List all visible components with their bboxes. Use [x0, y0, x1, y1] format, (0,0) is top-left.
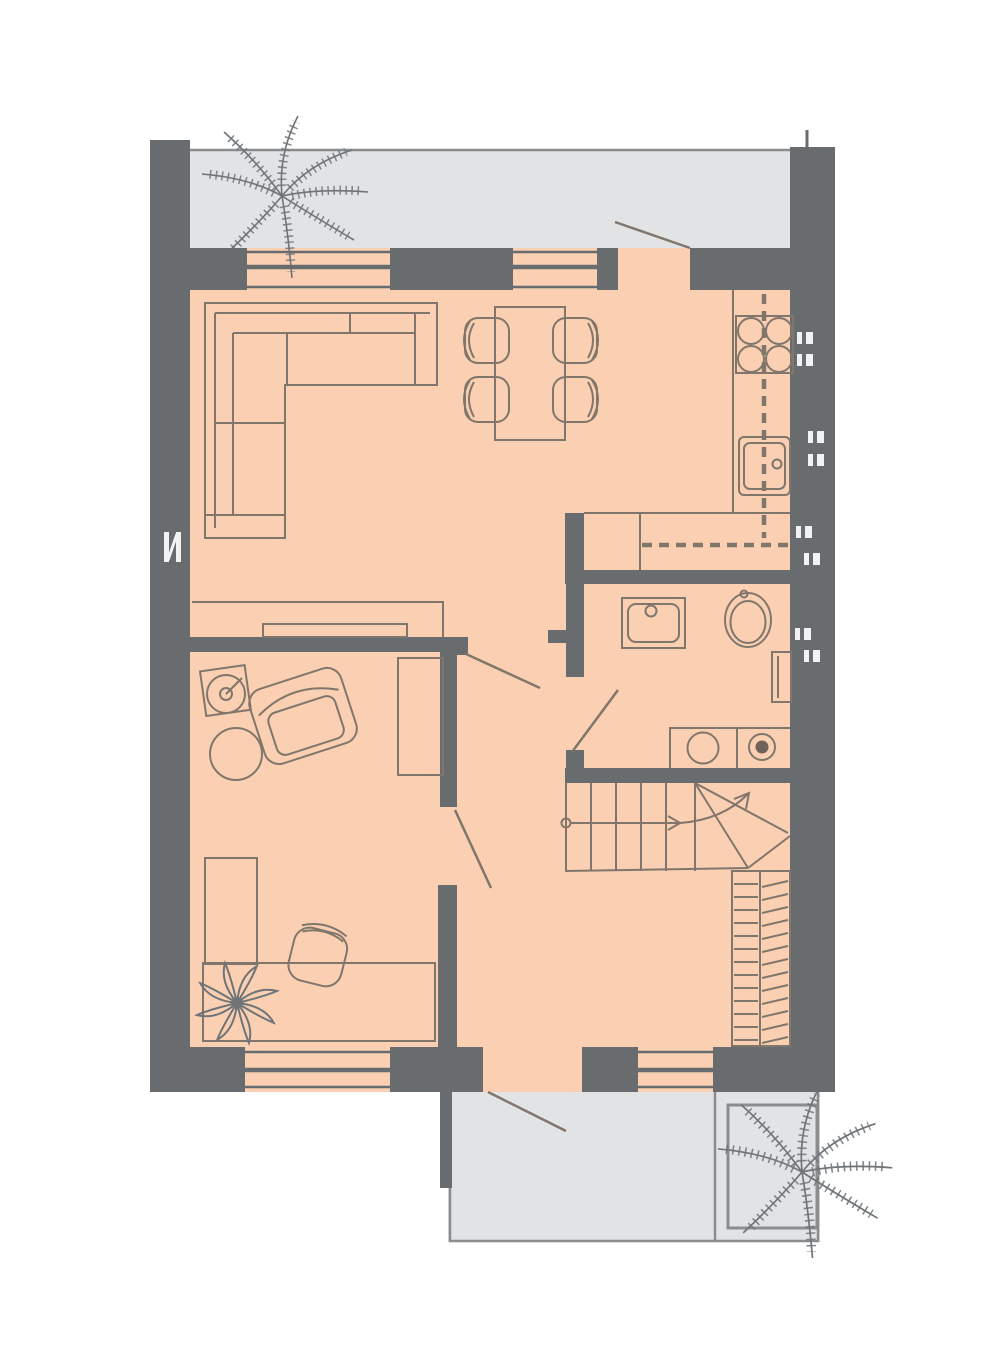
north-wall-seg1: [190, 248, 247, 290]
bedroom-north-wall: [190, 637, 468, 652]
south-wall-seg3: [582, 1047, 638, 1092]
porch-side-wall: [440, 1092, 452, 1188]
left-exterior-wall: [150, 140, 190, 1092]
bathroom-north-wall: [565, 570, 790, 584]
right-exterior-wall: [790, 147, 835, 1092]
floor-plan-page: [0, 0, 999, 1350]
south-wall-seg1: [185, 1047, 245, 1092]
bathroom-wall-stub: [548, 630, 566, 643]
bathroom-west-wall: [566, 584, 584, 677]
bottom-terrace-deck: [448, 1092, 820, 1242]
north-wall-seg3: [690, 248, 792, 290]
north-wall-mullion: [597, 248, 618, 290]
north-wall-seg2: [390, 248, 513, 290]
stairs-north-wall: [565, 768, 793, 783]
dryer-drum: [756, 741, 769, 754]
bottom-terrace: [440, 1088, 892, 1258]
south-wall-seg2: [390, 1047, 483, 1092]
floor-plan: [0, 0, 999, 1350]
bedroom-east-wall-lower: [438, 885, 457, 1047]
south-wall-seg4: [713, 1047, 835, 1092]
